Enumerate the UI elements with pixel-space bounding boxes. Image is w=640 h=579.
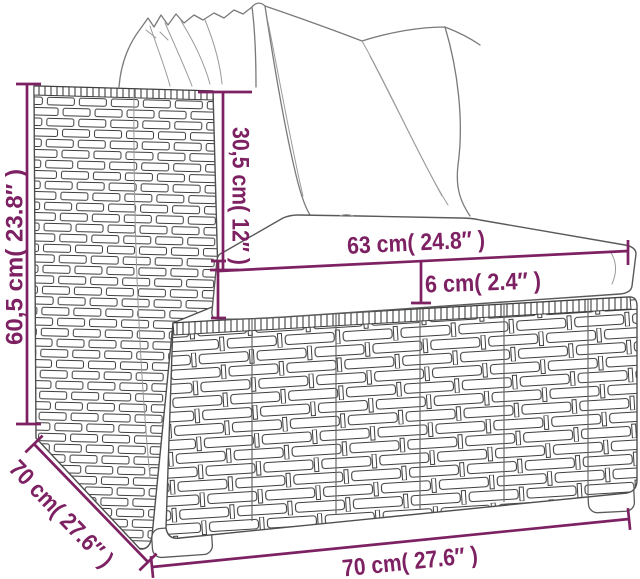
back-cushion-right bbox=[362, 27, 480, 216]
backrest-height-label: 30,5 cm( 12″ ) bbox=[227, 127, 254, 265]
cushion-thickness-label: 6 cm( 2.4″ ) bbox=[425, 267, 542, 298]
dimension-diagram: 60,5 cm( 23.8″ ) 30,5 cm( 12″ ) 63 cm( 2… bbox=[0, 0, 640, 579]
base-box bbox=[166, 297, 637, 538]
back-cushion-middle bbox=[252, 3, 362, 218]
back-cushion-left bbox=[119, 7, 256, 87]
total-height-label: 60,5 cm( 23.8″ ) bbox=[2, 169, 29, 345]
sofa-dimension-drawing: 60,5 cm( 23.8″ ) 30,5 cm( 12″ ) 63 cm( 2… bbox=[0, 0, 640, 579]
